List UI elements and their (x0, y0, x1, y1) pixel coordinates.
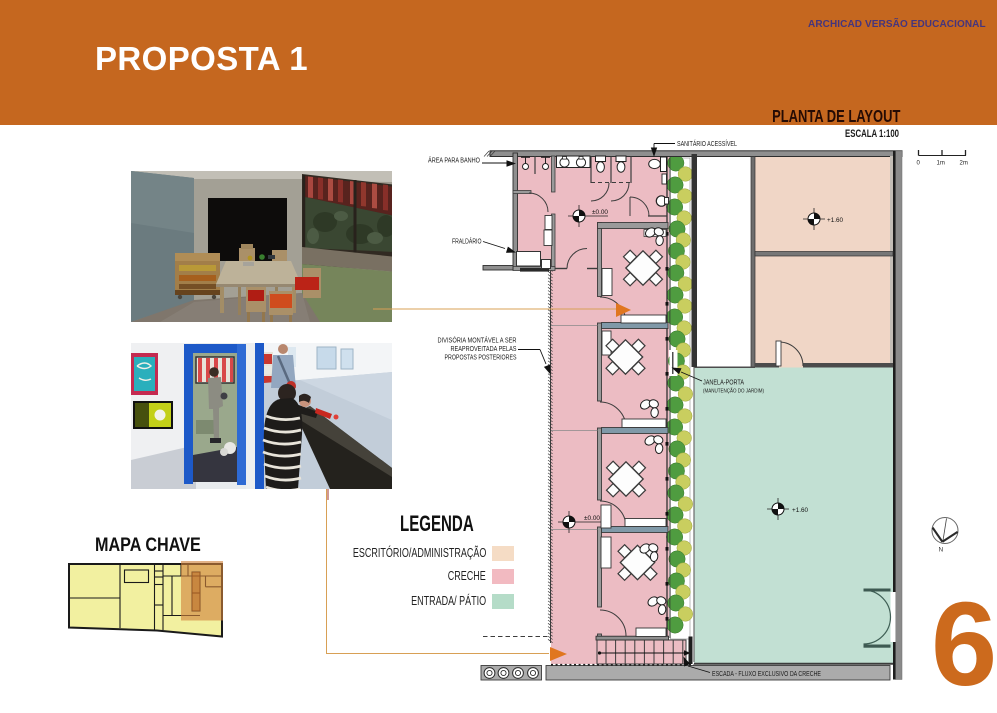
svg-text:+1.60: +1.60 (792, 507, 808, 514)
svg-text:FRALDÁRIO: FRALDÁRIO (452, 237, 482, 246)
svg-text:(MANUTENÇÃO DO JARDIM): (MANUTENÇÃO DO JARDIM) (703, 388, 764, 395)
svg-text:2m: 2m (960, 161, 968, 167)
svg-text:+1.60: +1.60 (827, 217, 843, 224)
svg-text:PROPOSTAS POSTERIORES: PROPOSTAS POSTERIORES (445, 355, 517, 362)
svg-text:0: 0 (917, 161, 921, 167)
svg-text:±0.00: ±0.00 (592, 209, 608, 216)
svg-text:N: N (939, 547, 944, 554)
svg-text:1m: 1m (937, 161, 945, 167)
svg-text:±0.00: ±0.00 (584, 515, 600, 522)
svg-text:REAPROVEITADA PELAS: REAPROVEITADA PELAS (451, 346, 517, 353)
svg-text:ESCADA - FLUXO EXCLUSIVO DA CR: ESCADA - FLUXO EXCLUSIVO DA CRECHE (712, 671, 821, 678)
svg-text:SANITÁRIO ACESSÍVEL: SANITÁRIO ACESSÍVEL (677, 139, 737, 148)
svg-text:DIVISÓRIA MONTÁVEL A SER: DIVISÓRIA MONTÁVEL A SER (438, 336, 517, 345)
svg-text:JANELA-PORTA: JANELA-PORTA (703, 378, 744, 387)
svg-text:ÁREA PARA BANHO: ÁREA PARA BANHO (428, 156, 480, 165)
